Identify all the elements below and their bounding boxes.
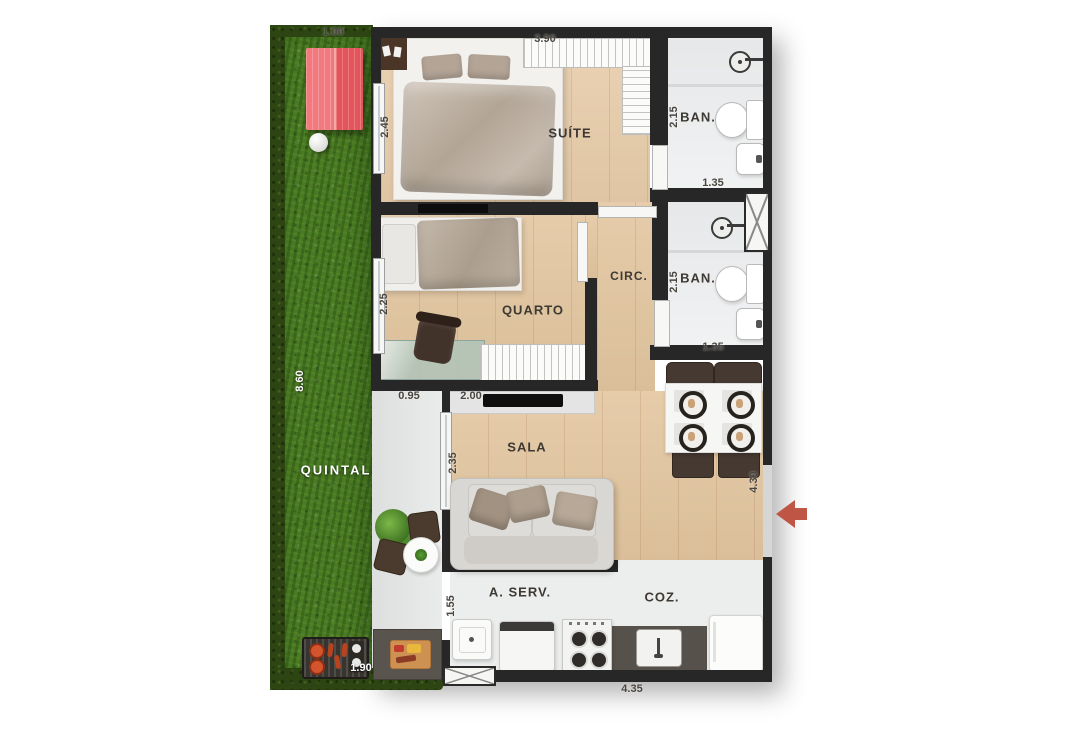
wall-right-lower [763, 557, 772, 682]
cutting-board [390, 640, 431, 669]
plate-icon [679, 391, 707, 419]
grill-sausage [327, 643, 334, 658]
dim-suite-depth: 2.45 [379, 116, 391, 137]
grill-meat [309, 659, 325, 675]
room-label-sala: SALA [507, 440, 546, 455]
dim-suite-width: 3.90 [534, 33, 555, 45]
duvet [400, 81, 556, 196]
room-label-coz: COZ. [644, 590, 679, 605]
room-label-ban-social: BAN. [680, 271, 716, 286]
toilet-bowl [715, 102, 749, 138]
door-suite [598, 206, 657, 218]
entry-door [763, 465, 772, 557]
room-label-circ: CIRC. [610, 269, 648, 283]
ball [309, 133, 328, 152]
patio-table [403, 537, 439, 573]
hedge-left [270, 25, 285, 690]
room-label-quarto: QUARTO [502, 303, 564, 318]
floorplan-canvas: QUINTAL SUÍTE BAN. QUARTO CIRC. BAN. SAL… [0, 0, 1080, 745]
toilet-tank [746, 100, 764, 140]
toilet-bowl [715, 266, 749, 302]
dim-tv-wall: 2.00 [460, 390, 481, 402]
wall-top [371, 27, 772, 38]
entry-arrow-icon [776, 500, 808, 528]
sink [736, 308, 765, 340]
dim-ban1-width: 1.35 [702, 177, 723, 189]
dining-chair [666, 362, 714, 385]
dim-quintal-length: 8.60 [294, 370, 306, 391]
shower-head-icon [729, 51, 751, 73]
pillow [421, 53, 463, 80]
plate-icon [352, 644, 361, 653]
pillow [382, 224, 416, 284]
toilet-tank [746, 264, 764, 304]
office-chair [404, 308, 465, 372]
plate-icon [679, 424, 707, 452]
shower-head-icon [711, 217, 733, 239]
pet-house-roof [306, 48, 363, 130]
wall-suite-bath-divider [650, 27, 668, 145]
tv-sala [483, 394, 563, 407]
faucet [756, 320, 762, 328]
shower-arm [745, 58, 763, 61]
wardrobe-quarto [480, 344, 589, 382]
door-quarto [577, 222, 588, 282]
vent-shaft-window [744, 192, 770, 252]
sofa-back [464, 536, 598, 564]
dim-grill-width: 1.90 [350, 662, 371, 674]
blanket [417, 217, 520, 289]
corridor-floor [597, 202, 655, 391]
sofa [450, 478, 612, 568]
laundry-tank [452, 619, 492, 660]
grill-sausage [341, 643, 347, 657]
pillow [467, 54, 510, 80]
dim-quintal-width: 1.00 [322, 26, 343, 38]
dim-sala-depth: 2.35 [447, 452, 459, 473]
food-item [394, 645, 404, 652]
room-label-aserv: A. SERV. [489, 585, 551, 600]
dim-quarto-depth: 2.25 [378, 293, 390, 314]
grill-sausage [334, 655, 341, 670]
room-label-quintal: QUINTAL [301, 463, 372, 478]
dim-ban2-width: 1.35 [702, 341, 723, 353]
closet-suite-side [622, 66, 652, 135]
single-bed [375, 217, 522, 291]
throw-pillow [551, 491, 598, 532]
kitchen-sink [636, 629, 682, 667]
dim-aserv-depth: 1.55 [445, 595, 457, 616]
room-label-suite: SUÍTE [548, 126, 591, 141]
window-laundry [443, 666, 496, 686]
plate-icon [727, 391, 755, 419]
patio-counter [373, 629, 442, 680]
shower-divider [668, 84, 763, 87]
washing-machine [499, 621, 555, 672]
tv-suite [418, 204, 488, 213]
book [393, 47, 401, 58]
wall-corridor-left [585, 278, 597, 380]
book [382, 45, 391, 56]
shower-arm [727, 224, 745, 227]
door-bathroom2 [654, 300, 670, 347]
table-centerpiece [415, 549, 427, 561]
dim-ban2-depth: 2.15 [668, 271, 680, 292]
refrigerator [709, 615, 763, 672]
dim-kitchen-width: 4.35 [621, 683, 642, 695]
food-item [396, 655, 417, 664]
stove-cooktop [562, 619, 612, 672]
roof-ridge [334, 48, 336, 130]
dining-chair [714, 362, 762, 385]
sink [736, 143, 765, 175]
door-bathroom1 [652, 145, 668, 190]
dining-table [665, 383, 762, 453]
faucet [756, 155, 762, 163]
kitchen-counter [611, 626, 707, 670]
dim-ban1-depth: 2.15 [668, 106, 680, 127]
nightstand [377, 38, 407, 70]
dim-sala-length: 4.30 [748, 471, 760, 492]
plate-icon [727, 424, 755, 452]
grill-meat [309, 643, 325, 659]
room-label-ban-suite: BAN. [680, 110, 716, 125]
food-item [407, 644, 421, 653]
dim-patio-width: 0.95 [398, 390, 419, 402]
wall-sala-left-upper [442, 391, 450, 412]
